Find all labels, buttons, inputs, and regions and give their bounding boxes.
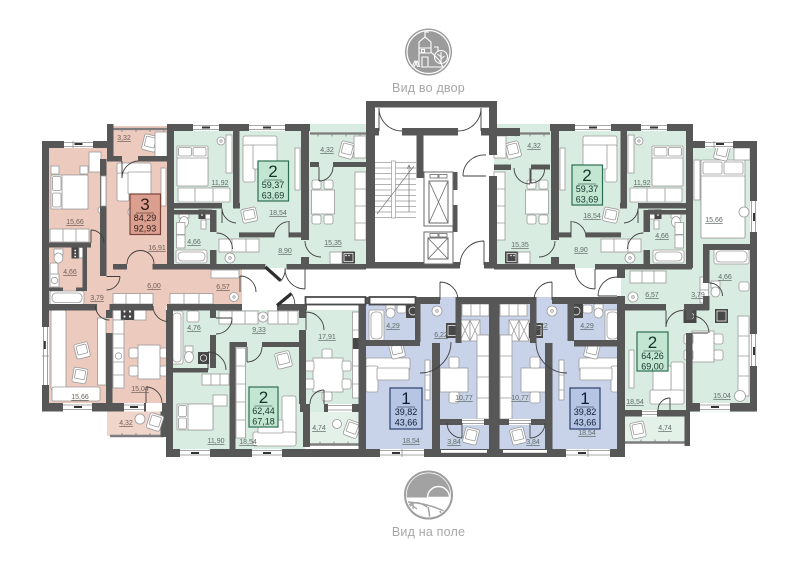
svg-text:2: 2 (582, 166, 591, 185)
svg-text:4,29: 4,29 (580, 323, 594, 330)
svg-text:15,04: 15,04 (713, 393, 731, 400)
svg-text:18,54: 18,54 (402, 438, 420, 445)
svg-text:18,54: 18,54 (578, 430, 596, 437)
svg-text:4,74: 4,74 (312, 425, 326, 432)
svg-text:39,82: 39,82 (574, 407, 597, 417)
svg-text:15,35: 15,35 (511, 242, 529, 249)
svg-text:4,32: 4,32 (320, 147, 334, 154)
svg-text:9,33: 9,33 (252, 327, 266, 334)
svg-text:3,84: 3,84 (447, 439, 461, 446)
svg-text:15,04: 15,04 (131, 386, 149, 393)
svg-text:18,54: 18,54 (583, 213, 601, 220)
svg-text:6,57: 6,57 (216, 284, 230, 291)
svg-text:4,29: 4,29 (386, 323, 400, 330)
svg-text:15,35: 15,35 (324, 240, 342, 247)
svg-text:2: 2 (648, 333, 657, 352)
svg-text:43,66: 43,66 (574, 418, 597, 428)
svg-text:4,74: 4,74 (658, 425, 672, 432)
svg-text:63,69: 63,69 (262, 191, 285, 201)
svg-text:39,82: 39,82 (395, 407, 418, 417)
svg-text:67,18: 67,18 (252, 417, 275, 427)
svg-text:64,26: 64,26 (641, 351, 664, 361)
svg-text:59,37: 59,37 (262, 180, 285, 190)
svg-text:59,37: 59,37 (576, 184, 599, 194)
svg-text:16,91: 16,91 (148, 245, 166, 252)
svg-text:Вид на поле: Вид на поле (392, 525, 465, 539)
svg-text:11,92: 11,92 (634, 180, 651, 187)
svg-text:Вид во двор: Вид во двор (392, 81, 465, 95)
svg-text:3: 3 (140, 195, 149, 214)
svg-text:11,92: 11,92 (212, 180, 229, 187)
svg-text:10,77: 10,77 (455, 395, 473, 402)
svg-text:6,22: 6,22 (434, 332, 448, 339)
svg-text:3,79: 3,79 (90, 295, 104, 302)
svg-text:2: 2 (268, 162, 277, 181)
svg-text:63,69: 63,69 (576, 195, 599, 205)
svg-text:62,44: 62,44 (252, 406, 275, 416)
svg-text:3,32: 3,32 (117, 135, 131, 142)
svg-text:6,22: 6,22 (534, 323, 548, 330)
svg-text:2: 2 (259, 388, 268, 407)
svg-text:18,54: 18,54 (269, 210, 287, 217)
svg-text:18,54: 18,54 (239, 439, 257, 446)
svg-text:10,77: 10,77 (511, 395, 529, 402)
svg-text:4,76: 4,76 (187, 325, 201, 332)
svg-text:84,29: 84,29 (134, 213, 157, 223)
svg-text:4,32: 4,32 (119, 420, 133, 427)
svg-text:4,32: 4,32 (527, 143, 541, 150)
svg-text:4,66: 4,66 (655, 233, 669, 240)
svg-text:4,66: 4,66 (187, 239, 201, 246)
svg-text:1: 1 (580, 389, 589, 408)
svg-text:8,90: 8,90 (574, 247, 588, 254)
svg-text:6,00: 6,00 (147, 283, 161, 290)
svg-text:8,90: 8,90 (278, 248, 292, 255)
svg-text:17,91: 17,91 (318, 334, 336, 341)
svg-text:15,66: 15,66 (66, 219, 84, 226)
svg-text:18,54: 18,54 (626, 399, 644, 406)
svg-text:15,66: 15,66 (71, 394, 89, 401)
svg-text:4,66: 4,66 (63, 269, 77, 276)
svg-text:3,79: 3,79 (691, 292, 705, 299)
svg-text:15,66: 15,66 (705, 217, 723, 224)
svg-text:69,00: 69,00 (641, 362, 664, 372)
svg-text:4,66: 4,66 (718, 274, 732, 281)
svg-text:92,93: 92,93 (134, 224, 157, 234)
svg-text:11,90: 11,90 (208, 438, 225, 445)
svg-text:6,57: 6,57 (645, 292, 659, 299)
svg-text:1: 1 (401, 389, 410, 408)
svg-text:3,84: 3,84 (526, 439, 540, 446)
svg-text:43,66: 43,66 (395, 418, 418, 428)
